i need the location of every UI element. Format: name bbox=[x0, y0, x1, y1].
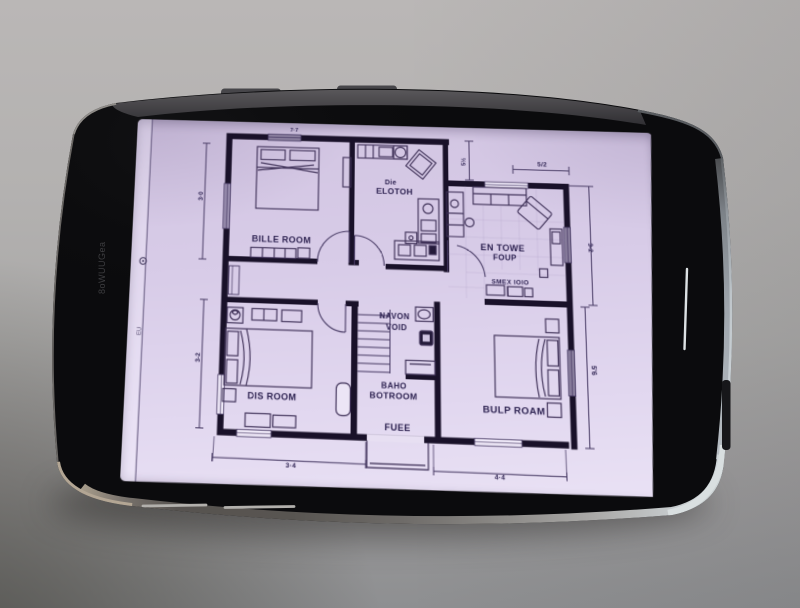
svg-text:ELOTOH: ELOTOH bbox=[376, 186, 413, 196]
svg-text:3·0: 3·0 bbox=[198, 191, 205, 201]
svg-text:4·4: 4·4 bbox=[495, 475, 506, 482]
svg-text:8oWUUGea: 8oWUUGea bbox=[97, 241, 107, 294]
svg-text:Die: Die bbox=[385, 179, 397, 187]
svg-text:5'6: 5'6 bbox=[589, 365, 597, 375]
svg-text:VOID: VOID bbox=[386, 322, 408, 333]
svg-text:BULP ROAM: BULP ROAM bbox=[483, 404, 546, 418]
svg-text:FOUP: FOUP bbox=[493, 252, 517, 262]
svg-text:5½: 5½ bbox=[460, 157, 467, 165]
svg-text:BOTROOM: BOTROOM bbox=[370, 390, 418, 402]
svg-text:EU: EU bbox=[136, 327, 143, 336]
svg-text:7·7: 7·7 bbox=[290, 128, 298, 134]
svg-text:DIS ROOM: DIS ROOM bbox=[247, 390, 296, 403]
svg-text:BILLE ROOM: BILLE ROOM bbox=[252, 233, 311, 245]
svg-text:3·4: 3·4 bbox=[285, 463, 296, 470]
svg-text:SMEX IOIO: SMEX IOIO bbox=[492, 279, 530, 287]
svg-text:FUEE: FUEE bbox=[384, 421, 410, 433]
svg-text:5/2: 5/2 bbox=[537, 162, 547, 168]
svg-text:BAHO: BAHO bbox=[381, 380, 406, 391]
svg-text:3-2: 3-2 bbox=[195, 352, 202, 362]
svg-text:3-2: 3-2 bbox=[586, 243, 593, 253]
svg-text:NAVON: NAVON bbox=[379, 311, 409, 322]
